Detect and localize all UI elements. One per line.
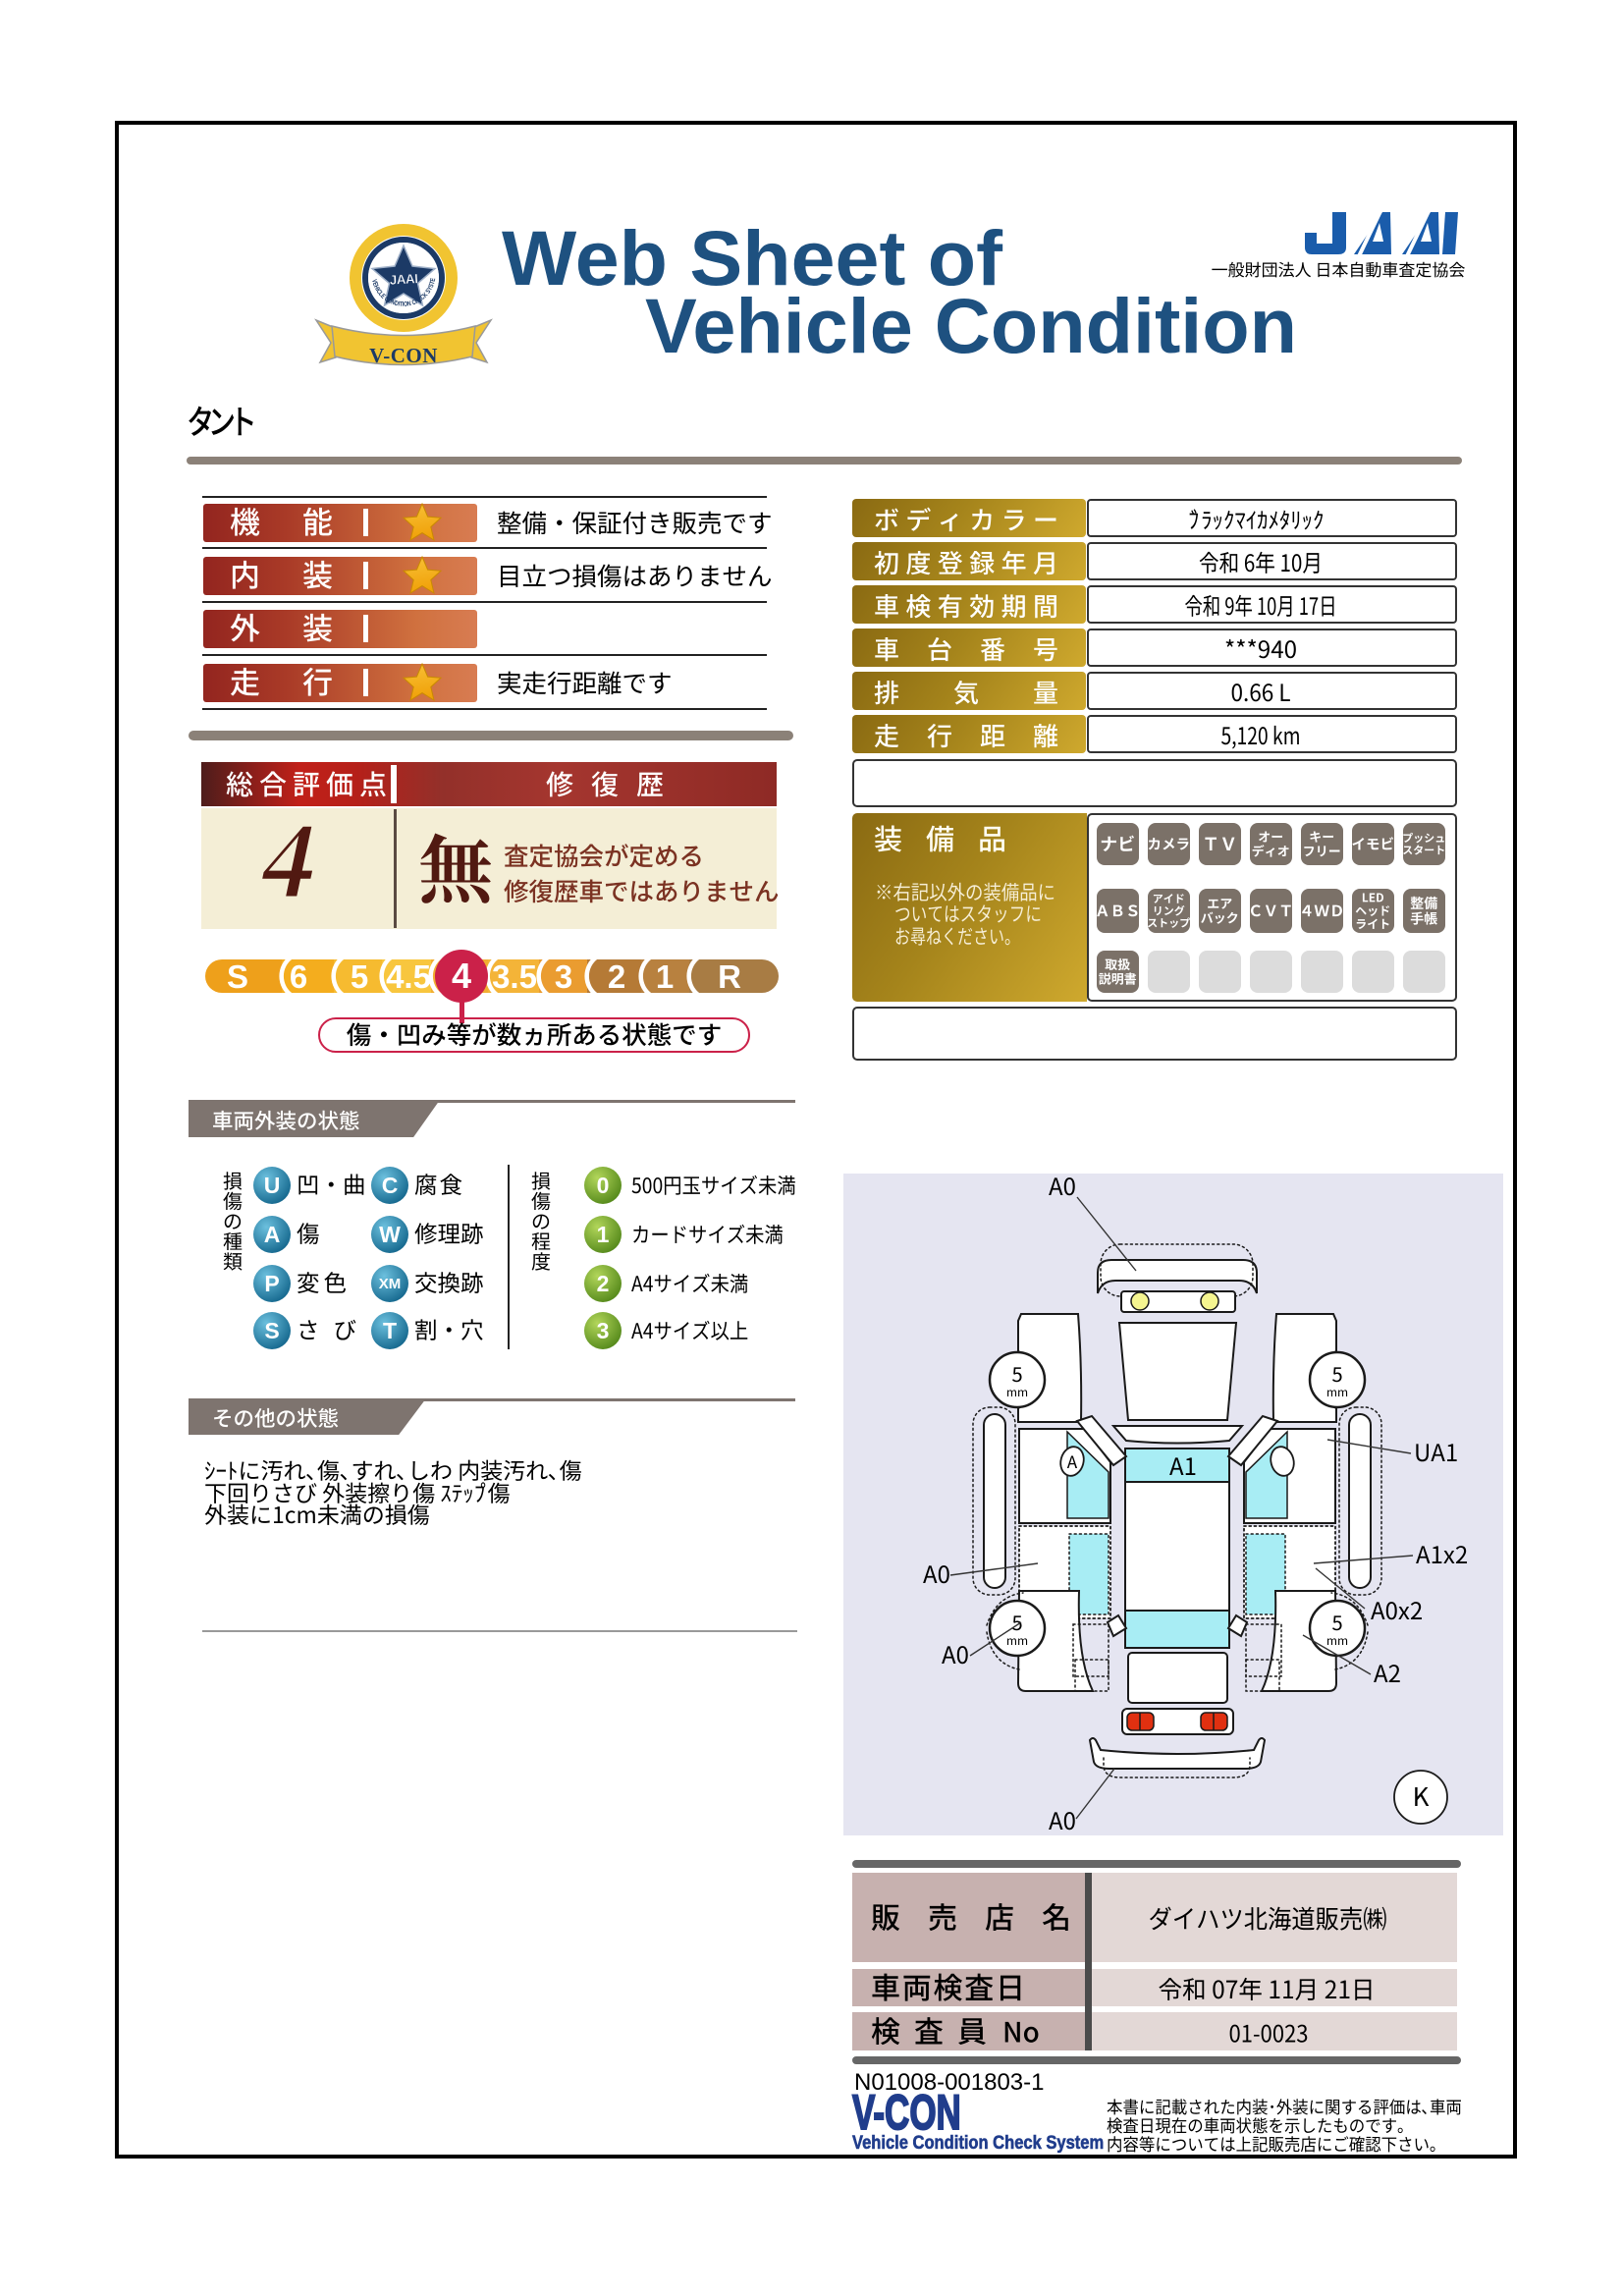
svg-text:6: 6	[290, 958, 307, 995]
svg-text:4.5: 4.5	[386, 958, 431, 995]
svg-text:2: 2	[608, 958, 625, 995]
svg-text:0: 0	[597, 1173, 610, 1198]
svg-text:1: 1	[656, 958, 674, 995]
svg-text:C: C	[382, 1173, 399, 1198]
svg-text:4: 4	[452, 956, 471, 996]
svg-text:3: 3	[555, 958, 572, 995]
svg-text:P: P	[264, 1271, 279, 1296]
svg-text:U: U	[264, 1173, 281, 1198]
svg-text:Vehicle Condition: Vehicle Condition	[645, 282, 1297, 369]
svg-text:3: 3	[597, 1318, 610, 1343]
svg-text:Vehicle Condition Check System: Vehicle Condition Check System	[852, 2132, 1104, 2153]
svg-text:S: S	[264, 1318, 279, 1343]
svg-text:S: S	[227, 958, 248, 995]
svg-text:A: A	[264, 1222, 281, 1247]
svg-text:2: 2	[597, 1271, 610, 1296]
svg-text:T: T	[383, 1318, 397, 1343]
svg-text:W: W	[379, 1222, 401, 1247]
svg-text:3.5: 3.5	[492, 958, 537, 995]
svg-text:XM: XM	[379, 1276, 402, 1292]
svg-text:5: 5	[351, 958, 368, 995]
svg-text:1: 1	[597, 1222, 610, 1247]
svg-text:V-CON: V-CON	[369, 344, 438, 367]
svg-text:JAAI: JAAI	[389, 271, 418, 287]
svg-text:R: R	[718, 958, 741, 995]
